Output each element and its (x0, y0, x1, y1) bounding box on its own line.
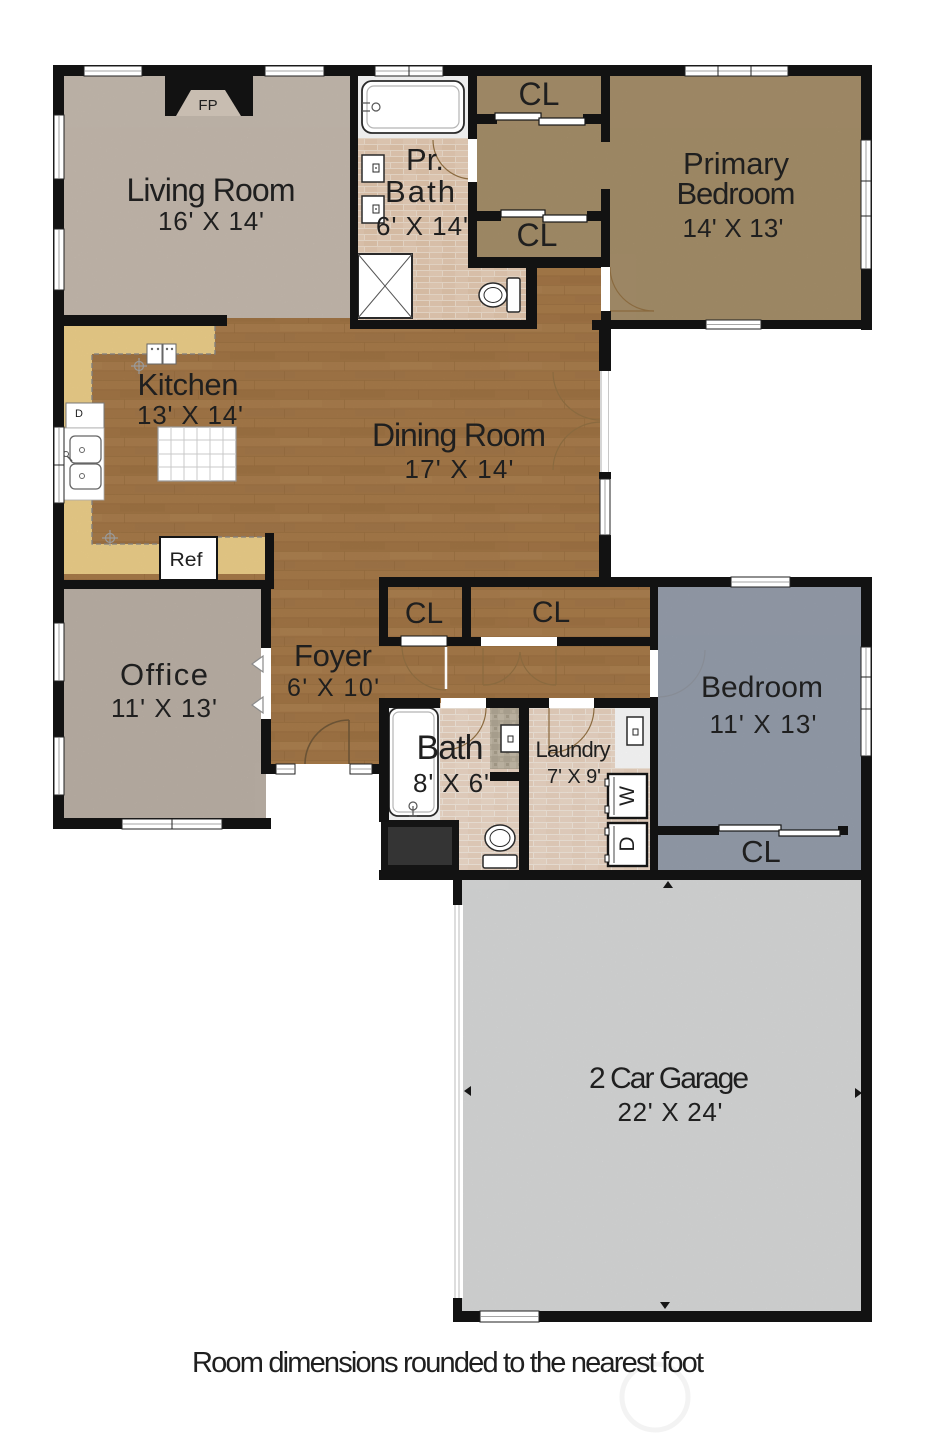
svg-text:FP: FP (198, 97, 217, 114)
svg-text:Pr.: Pr. (406, 142, 444, 177)
svg-text:14' X 13': 14' X 13' (683, 213, 784, 243)
svg-text:CL: CL (405, 597, 443, 630)
svg-text:Ref: Ref (170, 550, 204, 571)
svg-text:CL: CL (532, 596, 570, 629)
svg-text:Living Room: Living Room (127, 172, 296, 208)
svg-text:CL: CL (741, 834, 781, 869)
svg-text:6' X 10': 6' X 10' (287, 674, 379, 702)
svg-text:Bedroom: Bedroom (677, 176, 796, 211)
svg-text:22' X 24': 22' X 24' (618, 1097, 723, 1127)
svg-text:7' X 9': 7' X 9' (547, 766, 601, 788)
svg-text:Bath: Bath (417, 729, 484, 767)
svg-text:11' X 13': 11' X 13' (111, 693, 217, 723)
svg-text:W: W (616, 786, 639, 806)
svg-text:D: D (616, 836, 639, 851)
svg-text:Room dimensions rounded to the: Room dimensions rounded to the nearest f… (192, 1347, 704, 1379)
svg-text:Kitchen: Kitchen (138, 367, 239, 402)
svg-text:Laundry: Laundry (536, 737, 611, 762)
svg-text:Dining Room: Dining Room (372, 417, 546, 453)
svg-text:8' X 6': 8' X 6' (413, 768, 489, 798)
svg-text:13' X 14': 13' X 14' (137, 400, 243, 430)
svg-text:6' X 14': 6' X 14' (376, 211, 468, 241)
svg-text:17' X 14': 17' X 14' (405, 454, 514, 484)
svg-text:2 Car Garage: 2 Car Garage (589, 1062, 749, 1095)
svg-text:11' X 13': 11' X 13' (710, 709, 817, 739)
svg-text:CL: CL (517, 217, 558, 253)
svg-text:16' X 14': 16' X 14' (158, 206, 264, 236)
svg-text:Bedroom: Bedroom (701, 671, 823, 704)
svg-text:Foyer: Foyer (294, 638, 372, 673)
svg-text:Bath: Bath (385, 174, 455, 209)
svg-text:CL: CL (519, 76, 560, 112)
svg-text:D: D (75, 408, 83, 420)
